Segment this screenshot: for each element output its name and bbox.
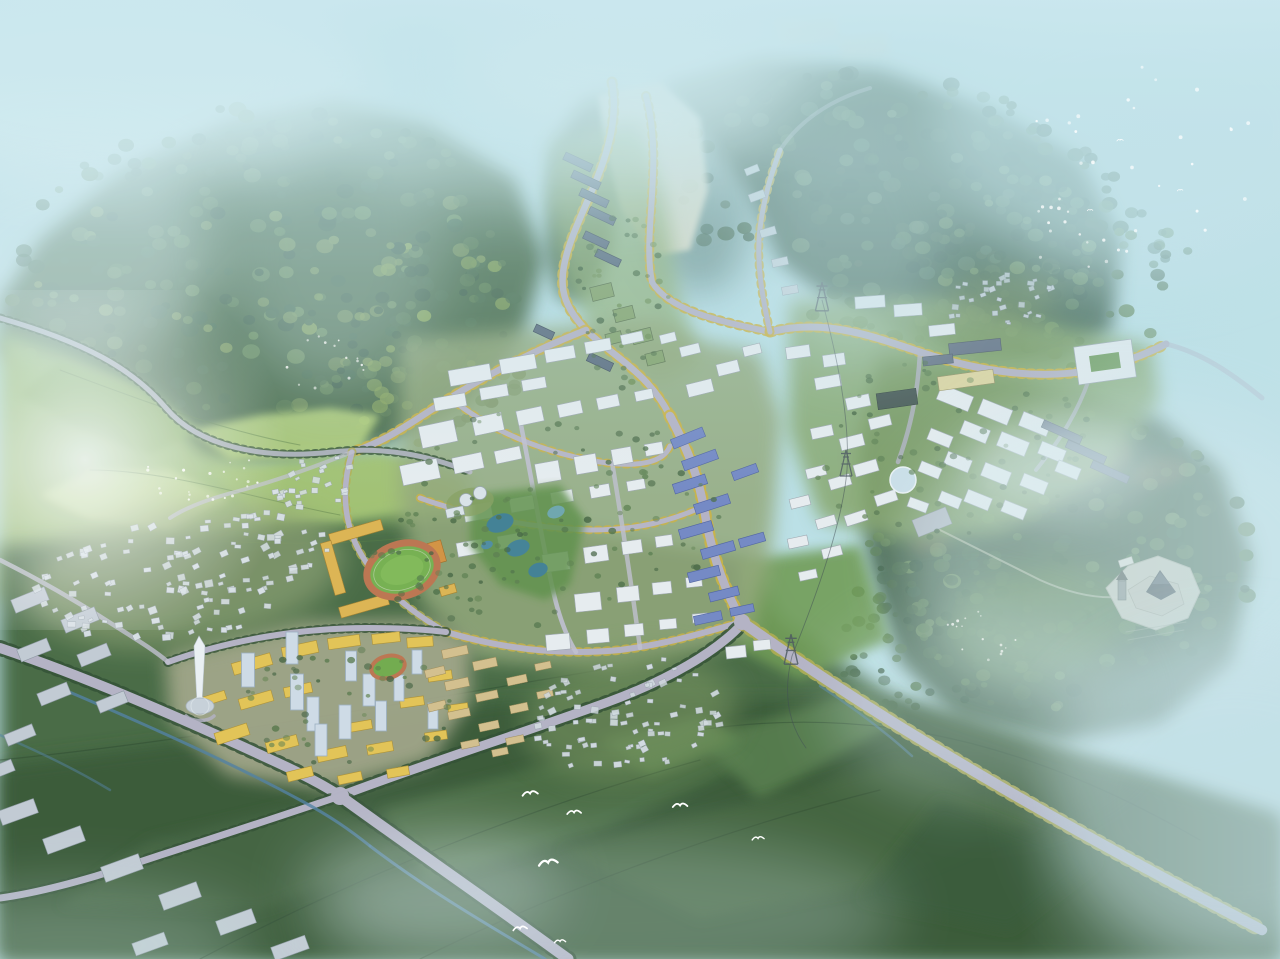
egret-flock-hill-bird-dot xyxy=(980,615,982,617)
bird-flock-topright2-bird-dot xyxy=(1063,220,1066,223)
egret-flock-forest-bird-dot xyxy=(318,335,320,337)
bird-flock-topright-bird-dot xyxy=(1134,229,1137,232)
egret-flock-field-bird-dot xyxy=(188,491,190,493)
bird-flock-topright-bird-dot xyxy=(1195,88,1199,92)
egret-flock-field-bird-dot xyxy=(182,469,185,472)
bird-flock-topright-bird-dot xyxy=(1079,161,1082,164)
egret-flock-field-bird-dot xyxy=(247,480,250,483)
bird-flock-topright2-bird-dot xyxy=(1049,230,1052,233)
egret-flock-hill-bird-dot xyxy=(947,624,949,626)
egret-flock-field-bird-dot xyxy=(236,478,238,480)
egret-flock-hill-bird-dot xyxy=(977,611,979,613)
bird-flock-topright-bird-dot xyxy=(1076,114,1080,118)
egret-flock-field-bird-dot xyxy=(212,498,215,501)
egret-flock-hill-bird-dot xyxy=(1001,650,1004,653)
bird-flock-topright-bird-dot xyxy=(1068,121,1071,124)
bird-flock-topright-bird-dot xyxy=(1154,78,1157,81)
egret-flock-field-bird-dot xyxy=(246,485,248,487)
bird-flock-topright-bird-dot xyxy=(1074,130,1077,133)
bird-flock-topright-bird-dot xyxy=(1230,127,1232,129)
bird-flock-topright-bird-dot xyxy=(1126,98,1129,101)
egret-flock-forest-bird-dot xyxy=(338,340,340,342)
egret-flock-hill-bird-dot xyxy=(961,625,963,627)
egret-flock-forest-bird-dot xyxy=(324,341,327,344)
egret-flock-field-bird-dot xyxy=(159,492,162,495)
bird-flock-topright-bird-dot xyxy=(1058,198,1061,201)
bird-flock-topright2-bird-dot xyxy=(1039,256,1042,259)
bird-flock-topright2-bird-dot xyxy=(1105,260,1108,263)
egret-flock-field-bird-dot xyxy=(231,495,234,498)
egret-flock-forest-bird-dot xyxy=(307,339,309,341)
egret-flock-forest-bird-dot xyxy=(333,345,335,347)
egret-flock-forest-bird-dot xyxy=(345,357,347,359)
bird-flock-topright2-bird-dot xyxy=(1102,239,1105,242)
bird-flock-topright2-bird-dot xyxy=(1049,206,1053,210)
masterplan-aerial-rendering xyxy=(0,0,1280,959)
egret-flock-forest-bird-dot xyxy=(361,364,363,366)
egret-flock-field-bird-dot xyxy=(224,497,226,499)
bird-flock-topright-bird-dot xyxy=(1047,221,1050,224)
egret-flock-hill-bird-dot xyxy=(982,638,984,640)
egret-flock-hill-bird-dot xyxy=(951,623,954,626)
egret-flock-field-bird-dot xyxy=(146,469,149,472)
egret-flock-forest-bird-dot xyxy=(298,384,300,386)
bird-flock-topright-bird-dot xyxy=(1079,233,1082,236)
bird-flock-topright-bird-dot xyxy=(1179,135,1183,139)
egret-flock-hill-bird-dot xyxy=(956,626,958,628)
egret-flock-field-bird-dot xyxy=(175,477,177,479)
bird-flock-topright-bird-dot xyxy=(1035,120,1037,122)
egret-flock-forest-bird-dot xyxy=(362,369,364,371)
egret-flock-hill-bird-dot xyxy=(956,619,959,622)
egret-flock-forest-bird-dot xyxy=(286,366,289,369)
egret-flock-field-bird-dot xyxy=(188,493,190,495)
egret-flock-forest-bird-dot xyxy=(314,387,317,390)
egret-flock-field-bird-dot xyxy=(188,498,190,500)
egret-flock-field-bird-dot xyxy=(206,495,209,498)
bird-flock-topright-bird-dot xyxy=(1141,66,1144,69)
bird-flock-topright-bird-dot xyxy=(1158,185,1160,187)
bird-flock-topright-bird-dot xyxy=(1204,229,1207,232)
egret-flock-field-bird-dot xyxy=(223,471,225,473)
egret-flock-hill-bird-dot xyxy=(961,648,963,650)
bird-flock-topright-bird-dot xyxy=(1125,250,1128,253)
scene-root xyxy=(0,0,1280,959)
global-tint xyxy=(0,0,1280,959)
egret-flock-hill-bird-dot xyxy=(1014,639,1016,641)
egret-flock-field-bird-dot xyxy=(256,481,258,483)
egret-flock-forest-bird-dot xyxy=(356,360,359,363)
bird-flock-topright-bird-dot xyxy=(1191,163,1194,166)
bird-flock-topright-bird-dot xyxy=(1091,161,1095,165)
egret-flock-field-bird-dot xyxy=(243,467,245,469)
egret-flock-field-bird-dot xyxy=(229,462,231,464)
bird-flock-topright-bird-dot xyxy=(1133,107,1136,110)
bird-flock-topright2-bird-dot xyxy=(1086,241,1088,243)
egret-flock-hill-bird-dot xyxy=(1000,644,1003,647)
bird-flock-topright-bird-dot xyxy=(1243,197,1247,201)
aerial-rendering-stage xyxy=(0,0,1280,959)
bird-flock-topright-bird-dot xyxy=(1246,121,1250,125)
egret-flock-hill-bird-dot xyxy=(1005,647,1007,649)
bird-flock-topright2-bird-dot xyxy=(1037,210,1040,213)
egret-flock-field-bird-dot xyxy=(147,466,149,468)
egret-flock-forest-bird-dot xyxy=(356,357,358,359)
egret-flock-hill-bird-dot xyxy=(987,658,990,661)
egret-flock-field-bird-dot xyxy=(158,487,161,490)
bird-flock-topright-bird-dot xyxy=(1196,210,1199,213)
egret-flock-field-bird-dot xyxy=(208,472,211,475)
bird-flock-topright-bird-dot xyxy=(1130,166,1134,170)
bird-flock-topright-bird-dot xyxy=(1057,206,1061,210)
egret-flock-field-bird-dot xyxy=(248,459,250,461)
bird-flock-topright2-bird-dot xyxy=(1067,211,1069,213)
egret-flock-hill-bird-dot xyxy=(1000,653,1003,656)
bird-flock-topright2-bird-dot xyxy=(1087,265,1089,267)
bird-flock-topright2-bird-dot xyxy=(1041,205,1044,208)
egret-flock-hill-bird-dot xyxy=(964,617,966,619)
bird-flock-topright2-bird-dot xyxy=(1117,248,1120,251)
egret-flock-forest-bird-dot xyxy=(348,377,351,380)
bird-flock-topright-bird-dot xyxy=(1045,118,1049,122)
